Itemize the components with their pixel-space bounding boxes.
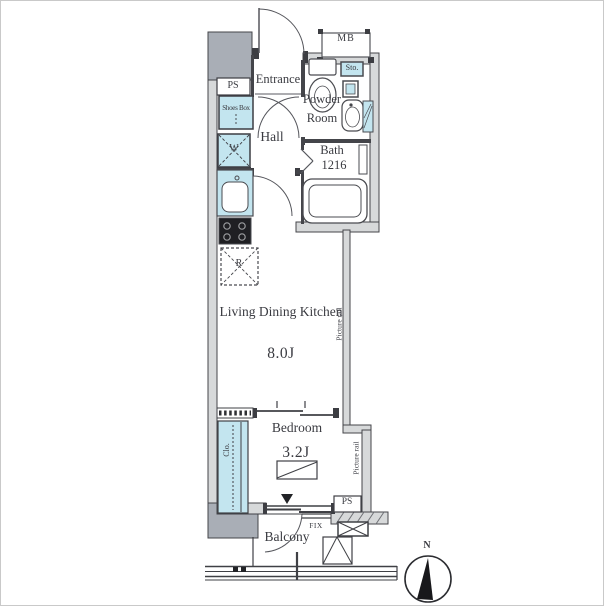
right-exterior-wall-upper — [370, 53, 379, 232]
room-label-ldk: Living Dining Kitchen — [216, 300, 346, 324]
room-label-bedroom: Bedroom — [272, 420, 322, 436]
ldk-door-arc — [252, 176, 292, 216]
storage-label: Sto. — [346, 63, 359, 73]
left-exterior-wall — [208, 80, 217, 505]
compass — [405, 556, 451, 602]
ldk-size-label: 8.0J — [267, 345, 294, 364]
bath-size-label: 1216 — [322, 158, 347, 173]
entrance-door-arc — [259, 9, 304, 54]
toilet-tank — [309, 59, 336, 75]
pipe-space-upper-label: PS — [227, 80, 238, 92]
ac-unit-space — [323, 537, 352, 564]
room-label-balcony: Balcony — [265, 529, 310, 545]
bedroom-size-label: 3.2J — [282, 444, 309, 463]
meter-box-label: MB — [337, 33, 355, 45]
refrigerator-label: R — [236, 258, 243, 270]
fixed-window-label: FIX — [309, 521, 323, 530]
stove — [219, 218, 251, 244]
direction-triangle — [281, 494, 293, 504]
kitchen-sink — [222, 182, 248, 212]
bath-fold-door-2 — [301, 161, 313, 173]
closet-label: Clo. — [222, 443, 232, 457]
room-label-powder-room: Powder Room — [295, 90, 349, 128]
picture-rail-bedroom-label: Picture rail — [352, 441, 361, 474]
compass-north-label: N — [423, 540, 430, 552]
ldk-bedroom-partition — [217, 401, 334, 418]
shoes-box — [219, 96, 253, 129]
floor-plan-image: MB PS Shoes Box Entrance Powder Room Sto… — [0, 0, 604, 606]
shoes-box-label: Shoes Box — [222, 104, 249, 112]
basin-faucet — [349, 103, 352, 106]
room-label-hall: Hall — [260, 129, 283, 145]
bath-counter — [359, 145, 367, 174]
room-label-entrance: Entrance — [256, 72, 300, 87]
ldk-right-wall — [343, 230, 350, 432]
shaft-top-left — [208, 32, 252, 80]
picture-rail-ldk-label: Picture rail — [335, 307, 344, 340]
washing-machine-label: W — [229, 143, 238, 155]
bath-fold-door-1 — [301, 149, 313, 161]
room-label-bath: Bath — [320, 143, 344, 158]
pipe-space-lower-label: PS — [342, 497, 353, 508]
bedroom-right-wall — [362, 430, 371, 514]
